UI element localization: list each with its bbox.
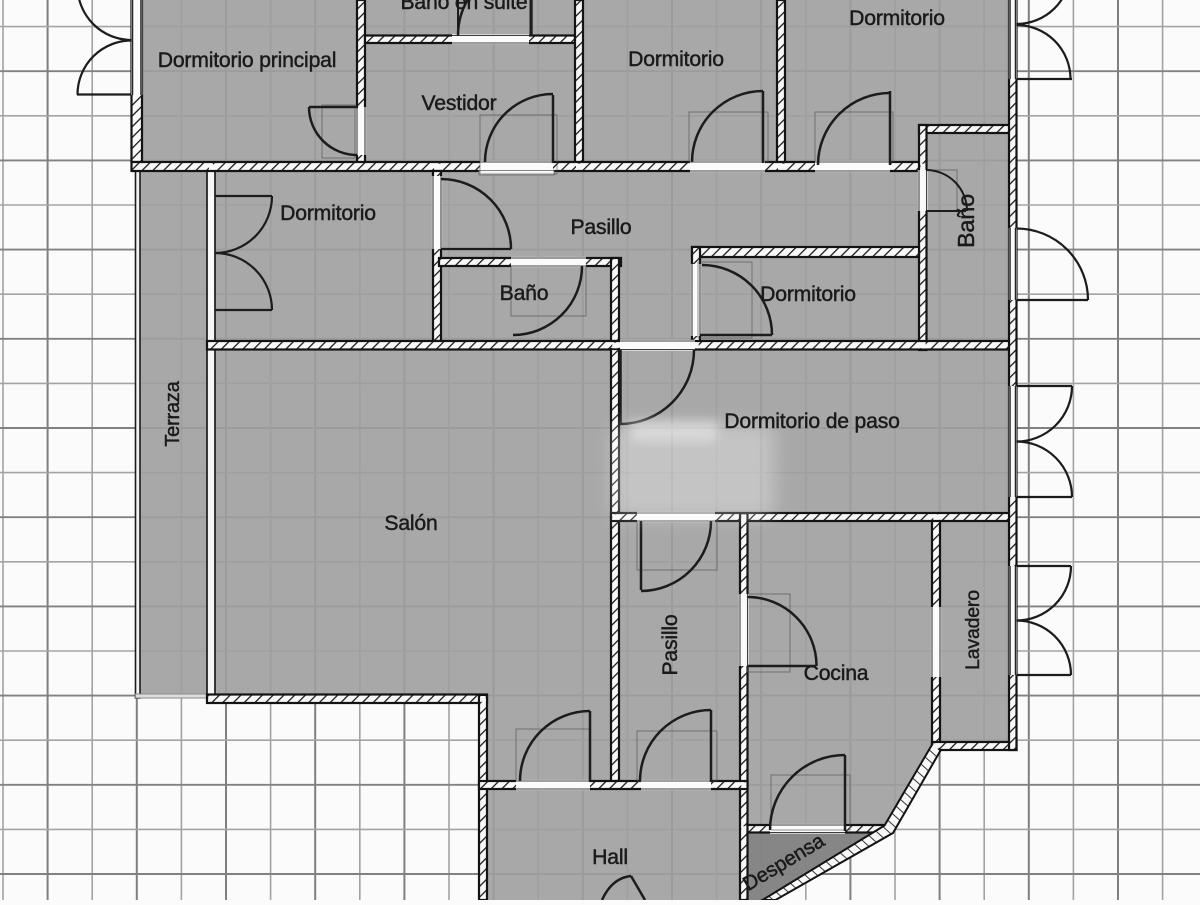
svg-text:Dormitorio: Dormitorio [280, 202, 376, 225]
svg-text:Baño: Baño [953, 194, 979, 248]
svg-text:Baño: Baño [500, 282, 549, 305]
svg-text:Dormitorio: Dormitorio [849, 7, 945, 30]
svg-text:Baño en suite: Baño en suite [401, 0, 528, 14]
svg-text:Lavadero: Lavadero [962, 590, 984, 670]
svg-text:Dormitorio: Dormitorio [628, 48, 724, 71]
svg-text:Dormitorio principal: Dormitorio principal [158, 49, 337, 72]
svg-text:Salón: Salón [384, 512, 437, 535]
svg-text:Terraza: Terraza [162, 380, 184, 446]
svg-text:Dormitorio: Dormitorio [760, 283, 856, 306]
svg-text:Dormitorio de paso: Dormitorio de paso [724, 410, 899, 433]
svg-text:Pasillo: Pasillo [570, 216, 631, 239]
svg-text:Vestidor: Vestidor [422, 92, 497, 115]
svg-text:Hall: Hall [592, 846, 628, 869]
svg-text:Pasillo: Pasillo [659, 614, 682, 675]
svg-text:Cocina: Cocina [804, 662, 869, 685]
